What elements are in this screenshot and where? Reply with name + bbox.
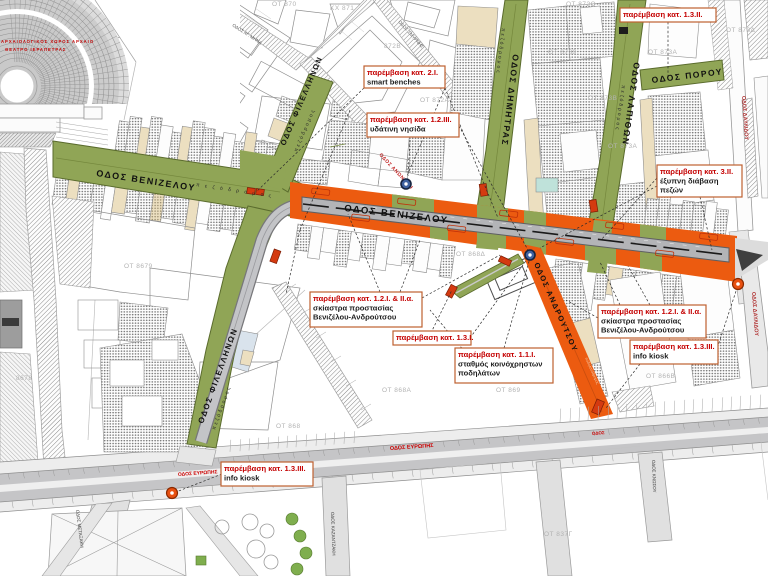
svg-text:info kiosk: info kiosk — [633, 351, 669, 360]
svg-text:ΟΤ 837Γ: ΟΤ 837Γ — [544, 531, 573, 538]
svg-text:ΟΤ 868Δ: ΟΤ 868Δ — [456, 251, 486, 258]
svg-text:Βενιζέλου-Ανδρούτσου: Βενιζέλου-Ανδρούτσου — [601, 326, 685, 335]
svg-text:ΟΤ 873Δ: ΟΤ 873Δ — [726, 27, 756, 34]
svg-text:ποδηλάτων: ποδηλάτων — [458, 369, 500, 378]
svg-text:παρέμβαση κατ. 1.2.Ι. & ΙΙ.α.: παρέμβαση κατ. 1.2.Ι. & ΙΙ.α. — [313, 294, 413, 303]
svg-text:8678: 8678 — [16, 375, 32, 382]
svg-text:παρέμβαση κατ. 3.ΙΙ.: παρέμβαση κατ. 3.ΙΙ. — [660, 167, 733, 176]
svg-text:info kiosk: info kiosk — [224, 473, 260, 482]
svg-text:ΟΤ 872Θ: ΟΤ 872Θ — [566, 1, 596, 8]
svg-text:ΟΤ 872Α: ΟΤ 872Α — [420, 97, 450, 104]
svg-text:ΘΕΑΤΡΟ ΙΕΡΑΠΕΤΡΑΣ: ΘΕΑΤΡΟ ΙΕΡΑΠΕΤΡΑΣ — [5, 47, 66, 52]
svg-text:παρέμβαση κατ. 1.1.Ι.: παρέμβαση κατ. 1.1.Ι. — [458, 350, 535, 359]
svg-text:ΟΤ 873Α: ΟΤ 873Α — [608, 143, 638, 150]
svg-text:872Β: 872Β — [384, 43, 401, 50]
svg-text:ΟΤ 868: ΟΤ 868 — [276, 423, 301, 430]
svg-text:παρέμβαση κατ. 1.2.ΙΙΙ.: παρέμβαση κατ. 1.2.ΙΙΙ. — [370, 115, 452, 124]
svg-text:ΟΤ 869: ΟΤ 869 — [496, 387, 521, 394]
svg-text:ΟΤ 873Α: ΟΤ 873Α — [648, 49, 678, 56]
svg-text:σταθμός κοινόχρηστων: σταθμός κοινόχρηστων — [458, 359, 543, 368]
svg-text:ΟΤ 868Α: ΟΤ 868Α — [382, 387, 412, 394]
svg-text:ΑΡΧΑΙΟΛΟΓΙΚΟΣ ΧΩΡΟΣ ΑΡΧΑΙΟ: ΑΡΧΑΙΟΛΟΓΙΚΟΣ ΧΩΡΟΣ ΑΡΧΑΙΟ — [1, 39, 94, 44]
svg-text:ΟΤ 873Β: ΟΤ 873Β — [588, 95, 617, 102]
svg-text:ΟΤ 870: ΟΤ 870 — [272, 1, 297, 8]
svg-text:ΚΧ 871: ΚΧ 871 — [330, 5, 354, 12]
svg-text:σκίαστρα προστασίας: σκίαστρα προστασίας — [601, 316, 681, 325]
svg-text:σκίαστρα προστασίας: σκίαστρα προστασίας — [313, 303, 393, 312]
svg-text:smart benches: smart benches — [367, 77, 421, 86]
svg-text:παρέμβαση κατ. 1.3.Ι.: παρέμβαση κατ. 1.3.Ι. — [396, 333, 473, 342]
svg-text:Βενιζέλου-Ανδρούτσου: Βενιζέλου-Ανδρούτσου — [313, 313, 397, 322]
svg-text:ΟΤ 8679: ΟΤ 8679 — [124, 263, 153, 270]
svg-text:ΟΔΟΣ: ΟΔΟΣ — [592, 430, 605, 436]
svg-text:παρέμβαση κατ. 2.Ι.: παρέμβαση κατ. 2.Ι. — [367, 68, 438, 77]
svg-text:ΟΤ 866Β: ΟΤ 866Β — [646, 373, 675, 380]
svg-text:παρέμβαση κατ. 1.3.ΙΙΙ.: παρέμβαση κατ. 1.3.ΙΙΙ. — [224, 464, 306, 473]
svg-text:παρέμβαση κατ. 1.3.ΙΙ.: παρέμβαση κατ. 1.3.ΙΙ. — [623, 10, 703, 19]
svg-text:ΟΤ 8739: ΟΤ 8739 — [548, 49, 577, 56]
svg-text:υδάτινη νησίδα: υδάτινη νησίδα — [370, 124, 426, 133]
svg-text:έξυπνη διάβαση: έξυπνη διάβαση — [660, 176, 719, 185]
svg-text:πεζών: πεζών — [660, 186, 683, 195]
svg-text:παρέμβαση κατ. 1.2.Ι. & ΙΙ.α.: παρέμβαση κατ. 1.2.Ι. & ΙΙ.α. — [601, 307, 701, 316]
svg-text:παρέμβαση κατ. 1.3.ΙΙΙ.: παρέμβαση κατ. 1.3.ΙΙΙ. — [633, 342, 715, 351]
